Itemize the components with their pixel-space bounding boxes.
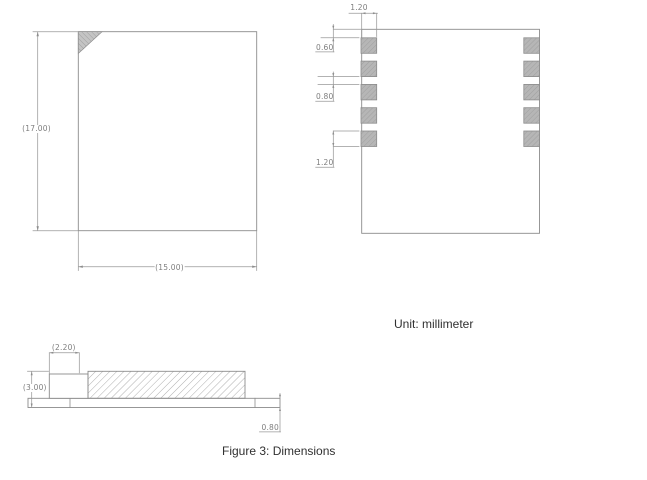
solder-pad-right-2	[524, 61, 540, 77]
solder-pad-right-1	[524, 38, 540, 54]
datasheet-figure-page: (17.00) (15.00) 1.20 0.60 0.80 1.20 (2.2…	[0, 0, 647, 480]
top-view	[33, 32, 257, 271]
figure-caption: Figure 3: Dimensions	[222, 444, 335, 458]
top-view-height-dim-label: (17.00)	[21, 125, 52, 133]
top-view-width-dim-label: (15.00)	[154, 264, 185, 272]
side-view-antenna-section	[49, 374, 88, 398]
solder-pad-right-5	[524, 131, 540, 147]
solder-pad-left-1	[361, 38, 377, 54]
solder-pad-left-2	[361, 61, 377, 77]
solder-pad-left-4	[361, 108, 377, 124]
side-view-base-board	[28, 398, 280, 407]
base-thickness-dim-label: 0.80	[262, 424, 280, 432]
pad-gap-dim-label: 0.80	[316, 93, 334, 101]
pad-height-dim-label: 1.20	[316, 159, 334, 167]
pad-width-dim-label: 1.20	[350, 4, 368, 12]
dimensions-drawing	[0, 0, 647, 480]
solder-pad-right-4	[524, 108, 540, 124]
solder-pad-left-3	[361, 84, 377, 100]
side-height-dim-label: (3.00)	[22, 384, 48, 392]
solder-pad-left-5	[361, 131, 377, 147]
side-view-shield-can	[88, 371, 245, 398]
unit-note: Unit: millimeter	[394, 317, 473, 331]
pad-top-offset-dim-label: 0.60	[316, 44, 334, 52]
side-view	[28, 352, 282, 432]
solder-pad-right-3	[524, 84, 540, 100]
side-shield-offset-dim-label: (2.20)	[52, 344, 76, 352]
pad-view-outline	[362, 29, 540, 233]
pad-view	[316, 12, 540, 233]
top-view-outline	[78, 32, 256, 231]
